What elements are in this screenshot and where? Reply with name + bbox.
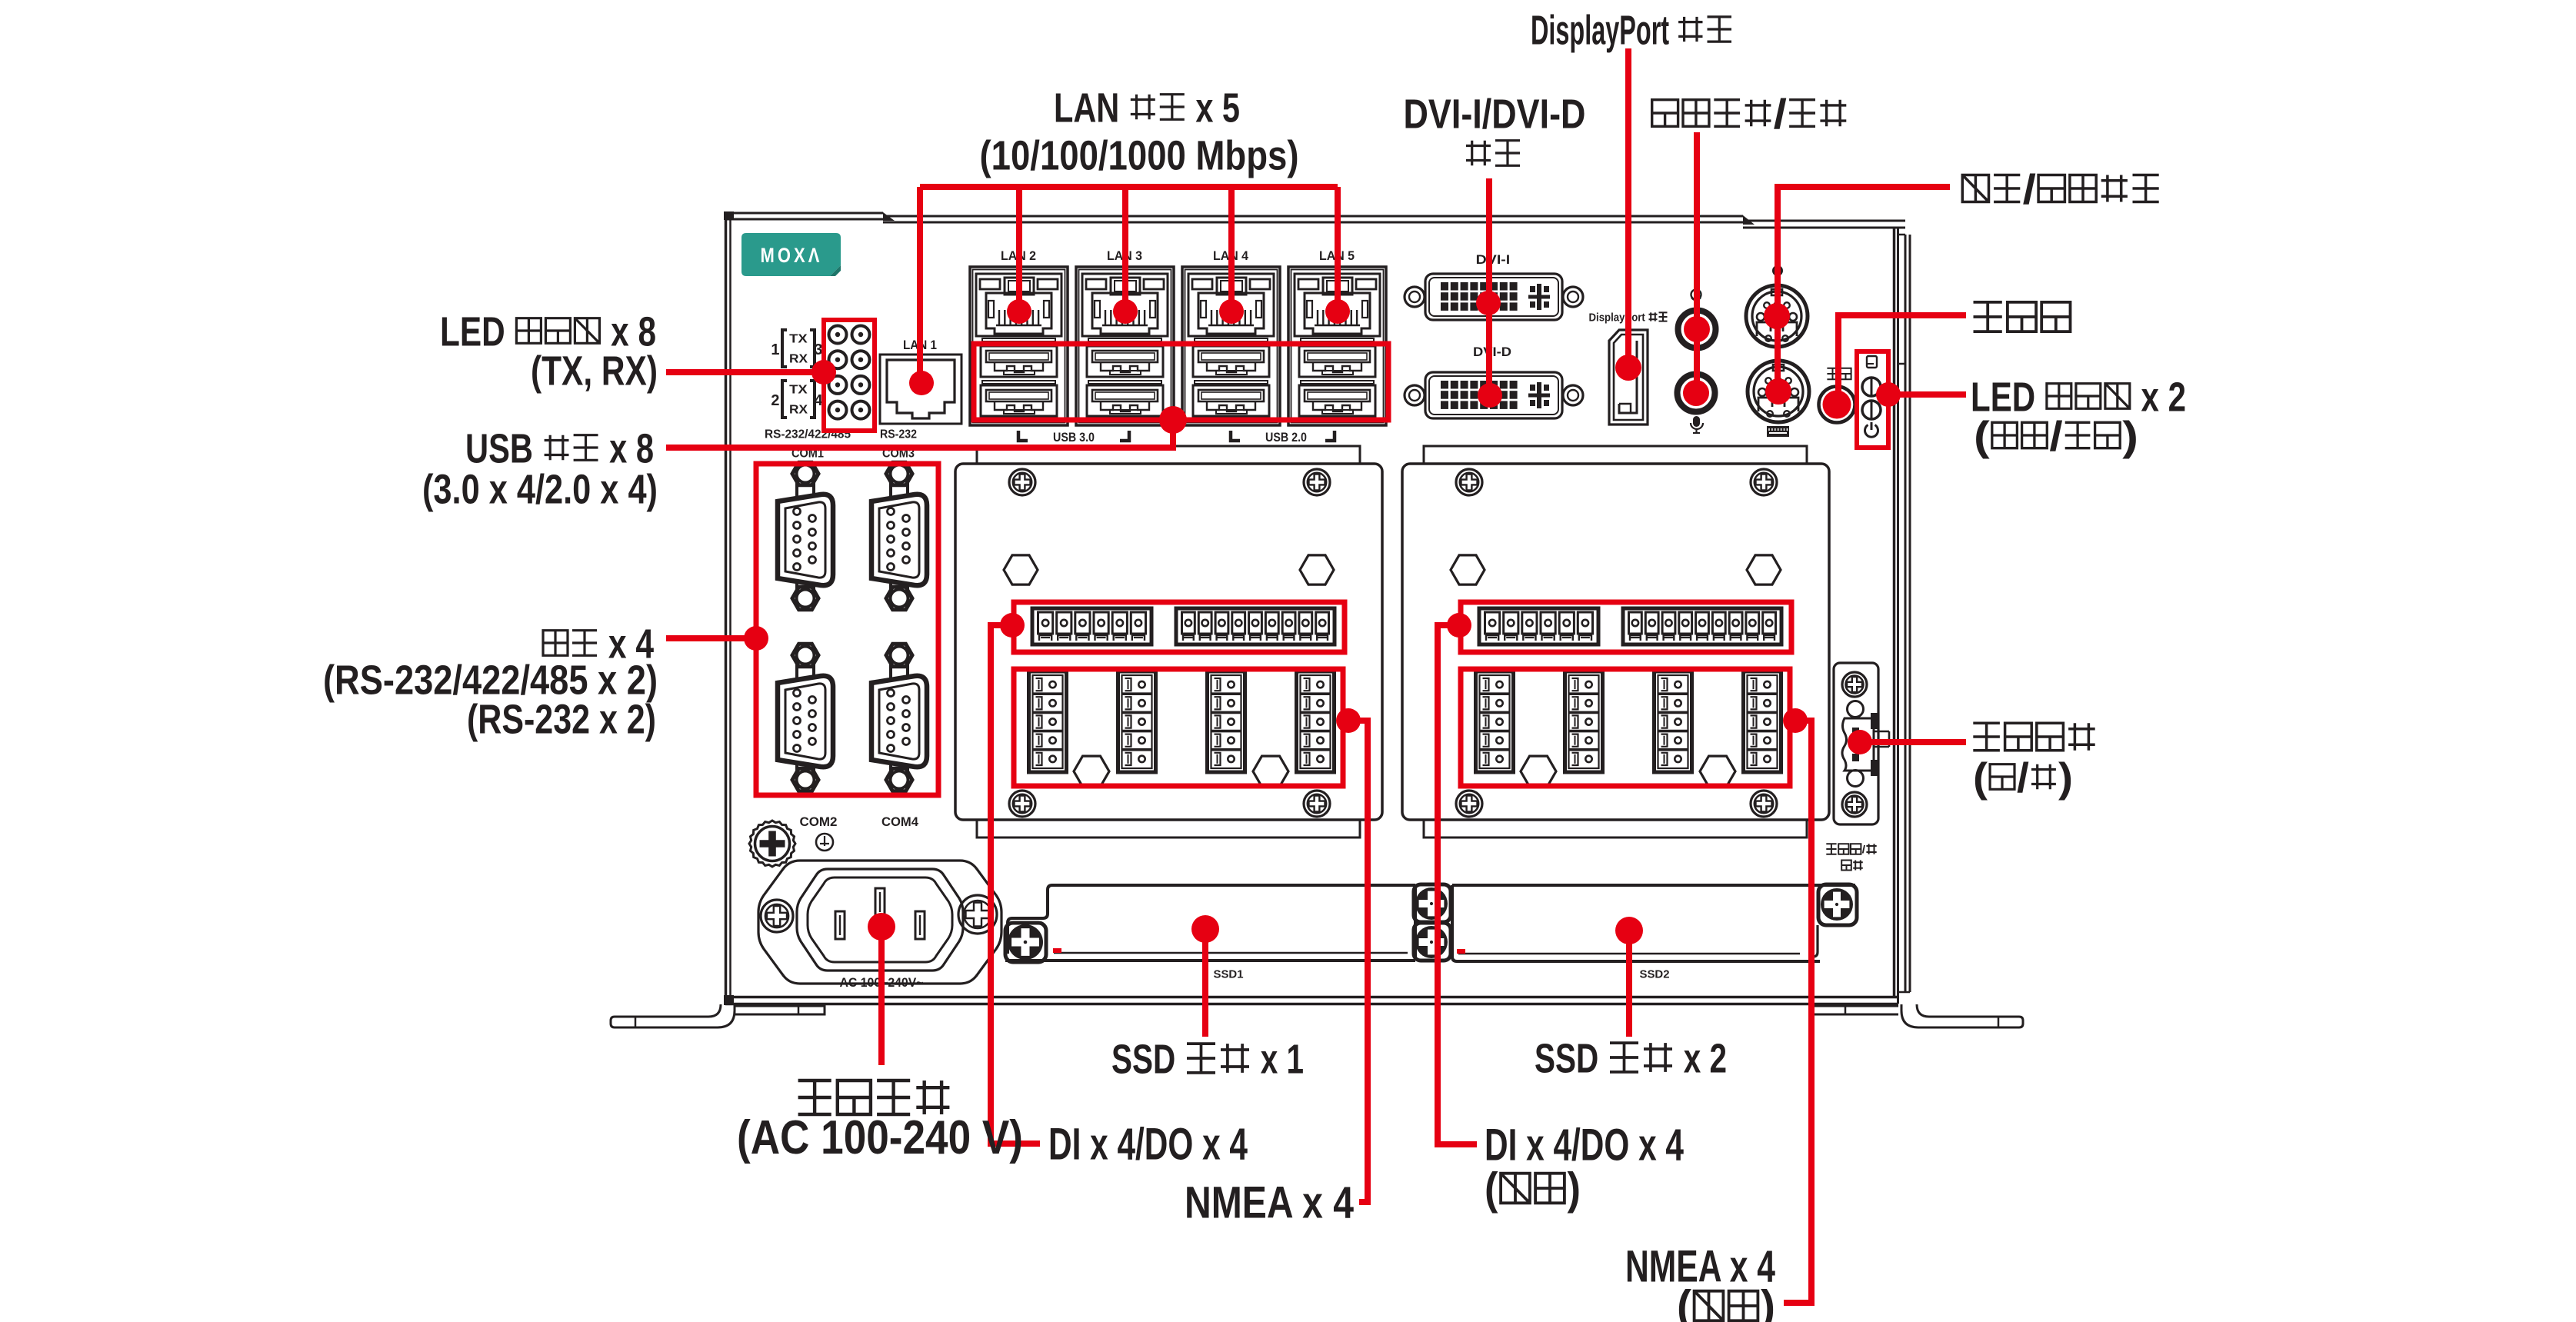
svg-text:SSD1: SSD1: [1214, 967, 1244, 981]
svg-text:/: /: [1774, 91, 1787, 137]
svg-text:COM4: COM4: [881, 814, 919, 829]
svg-text:TX: TX: [789, 384, 808, 397]
svg-text:x 8: x 8: [601, 425, 655, 471]
svg-text:LED: LED: [440, 308, 514, 355]
svg-text:1: 1: [771, 341, 779, 358]
svg-text:): ): [1568, 1164, 1581, 1214]
svg-text:SSD2: SSD2: [1640, 967, 1670, 981]
svg-text:3: 3: [814, 341, 822, 358]
svg-text:LAN: LAN: [1054, 85, 1128, 131]
svg-text:COM2: COM2: [800, 814, 838, 829]
svg-text:SSD: SSD: [1111, 1036, 1185, 1082]
svg-text:DVI-I/DVI-D: DVI-I/DVI-D: [1404, 91, 1586, 137]
svg-text:(TX, RX): (TX, RX): [531, 348, 658, 394]
svg-text:): ): [1761, 1282, 1775, 1322]
svg-text:/: /: [2023, 166, 2036, 212]
svg-text:NMEA x 4: NMEA x 4: [1625, 1242, 1775, 1292]
svg-text:SSD: SSD: [1535, 1035, 1608, 1081]
svg-text:DisplayPort: DisplayPort: [1589, 311, 1648, 324]
svg-text:USB: USB: [465, 425, 542, 471]
svg-text:DI x 4/DO x 4: DI x 4/DO x 4: [1485, 1121, 1684, 1170]
svg-text:(AC 100-240 V): (AC 100-240 V): [737, 1111, 1023, 1164]
svg-text:(: (: [1677, 1282, 1692, 1322]
svg-text:x 2: x 2: [2132, 374, 2186, 420]
svg-text:RS-232: RS-232: [880, 428, 917, 441]
svg-text:USB 3.0: USB 3.0: [1053, 430, 1095, 445]
svg-text:/: /: [2049, 413, 2062, 459]
svg-text:x 5: x 5: [1187, 85, 1240, 131]
svg-text:(3.0 x 4/2.0 x 4): (3.0 x 4/2.0 x 4): [422, 466, 658, 512]
svg-text:x 1: x 1: [1252, 1036, 1305, 1082]
svg-text:(: (: [1974, 413, 1990, 459]
svg-text:NMEA x 4: NMEA x 4: [1185, 1178, 1354, 1228]
svg-text:(RS-232 x 2): (RS-232 x 2): [467, 696, 656, 742]
svg-text:DisplayPort: DisplayPort: [1531, 7, 1676, 53]
svg-text:DVI-I: DVI-I: [1476, 252, 1511, 267]
svg-text:/: /: [1862, 843, 1866, 855]
svg-text:): ): [2058, 754, 2073, 801]
svg-text:RX: RX: [789, 404, 808, 417]
svg-text:DI x 4/DO x 4: DI x 4/DO x 4: [1048, 1120, 1248, 1170]
svg-text:2: 2: [771, 392, 779, 409]
svg-text:RX: RX: [789, 353, 808, 366]
svg-text:USB 2.0: USB 2.0: [1265, 430, 1307, 445]
svg-text:(: (: [1973, 754, 1988, 801]
svg-text:TX: TX: [789, 333, 808, 346]
svg-text:/: /: [2017, 754, 2029, 801]
svg-text:MOXΛ: MOXΛ: [761, 244, 823, 267]
svg-text:): ): [2122, 413, 2138, 459]
svg-text:x 2: x 2: [1675, 1035, 1728, 1081]
svg-text:(: (: [1485, 1164, 1498, 1214]
svg-text:(10/100/1000 Mbps): (10/100/1000 Mbps): [980, 132, 1299, 178]
